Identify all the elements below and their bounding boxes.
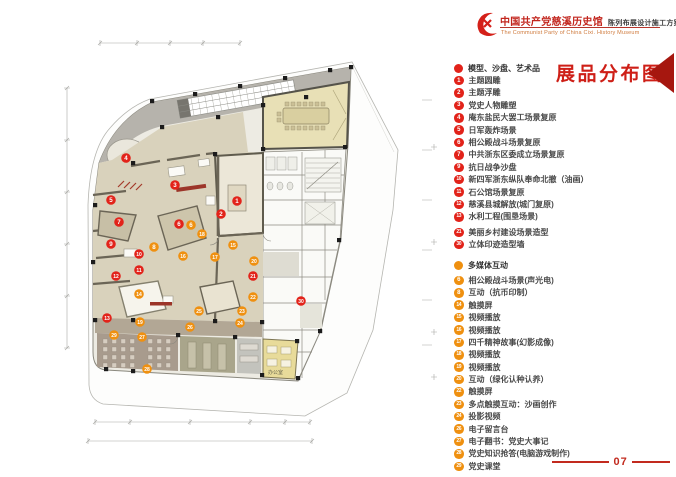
- legend-item: 11石公馆场景复原: [454, 186, 676, 198]
- legend-item-label: 相公殿战斗场景(声光电): [469, 275, 554, 286]
- plan-marker: 6: [186, 220, 196, 230]
- legend-item: 2主题浮雕: [454, 87, 676, 99]
- svg-text:6: 6: [189, 222, 193, 229]
- legend-item-number: 28: [454, 449, 464, 459]
- legend-item-number: 12: [454, 200, 464, 210]
- page-number-dash: [552, 461, 609, 463]
- legend-item-label: 相公殿战斗场景复原: [469, 137, 541, 148]
- legend-item: 19视频播放: [454, 361, 676, 373]
- legend-item-label: 主题浮雕: [469, 87, 501, 98]
- svg-text:9: 9: [109, 241, 113, 248]
- legend-item-number: 14: [454, 300, 464, 310]
- category-label: 多媒体互动: [468, 260, 508, 271]
- legend-item-label: 美丽乡村建设场景造型: [469, 227, 549, 238]
- legend-item-number: 26: [454, 424, 464, 434]
- legend-item: 27电子翻书：党史大事记: [454, 435, 676, 447]
- page: 海笛设计: [0, 0, 676, 477]
- svg-text:22: 22: [250, 295, 256, 301]
- plan-marker: 1: [232, 196, 242, 206]
- plan-marker: 18: [197, 229, 207, 239]
- legend-item-label: 中共浙东区委成立场景复原: [469, 149, 565, 160]
- legend-item-label: 电子翻书：党史大事记: [469, 436, 549, 447]
- party-emblem-logo: [474, 11, 500, 37]
- legend-item: 8互动（抗币印制）: [454, 287, 676, 299]
- plan-marker: 20: [249, 256, 259, 266]
- svg-text:17: 17: [212, 255, 218, 261]
- reading-tables: [188, 342, 226, 370]
- plan-marker: 4: [121, 153, 131, 163]
- legend-item-number: 3: [454, 101, 464, 111]
- svg-text:3: 3: [173, 182, 177, 189]
- plan-marker: 12: [111, 271, 121, 281]
- plan-marker: 25: [194, 306, 204, 316]
- page-number: 07: [552, 456, 670, 468]
- legend-item-label: 视频播放: [469, 362, 501, 373]
- svg-text:16: 16: [180, 254, 186, 260]
- legend-item-label: 四千精神故事(幻影成像): [469, 337, 554, 348]
- plan-marker: 15: [228, 240, 238, 250]
- legend-list: 模型、沙盘、艺术品1主题圆雕2主题浮雕3党史人物雕塑4庵东盐民大罢工场景复原5日…: [454, 62, 676, 473]
- legend-category: 模型、沙盘、艺术品: [454, 62, 676, 74]
- svg-text:8: 8: [152, 244, 156, 251]
- plan-marker: 2: [216, 209, 226, 219]
- svg-text:12: 12: [113, 274, 119, 280]
- category-dot-icon: [454, 64, 463, 73]
- plan-marker: 22: [248, 292, 258, 302]
- svg-text:19: 19: [137, 320, 143, 326]
- svg-text:6: 6: [177, 221, 181, 228]
- plan-marker: 27: [137, 332, 147, 342]
- legend-item-number: 4: [454, 113, 464, 123]
- legend-item: 30立体印迹造型墙: [454, 238, 676, 250]
- plan-marker: 17: [210, 252, 220, 262]
- legend-item-label: 投影视频: [469, 411, 501, 422]
- category-dot-icon: [454, 261, 463, 270]
- legend-item-number: 17: [454, 338, 464, 348]
- legend-item-label: 慈溪县城解放(城门复原): [469, 199, 554, 210]
- legend-item: 13水利工程(围垦场景): [454, 211, 676, 223]
- svg-text:1: 1: [235, 198, 239, 205]
- legend-item-number: 1: [454, 76, 464, 86]
- legend-item-number: 27: [454, 437, 464, 447]
- svg-text:14: 14: [136, 292, 142, 298]
- legend-item-number: 16: [454, 325, 464, 335]
- legend-item: 15视频播放: [454, 311, 676, 323]
- legend-item-number: 9: [454, 163, 464, 173]
- plan-marker: 29: [109, 330, 119, 340]
- svg-text:7: 7: [117, 219, 121, 226]
- legend-item-number: 13: [454, 212, 464, 222]
- svg-text:29: 29: [111, 333, 117, 339]
- svg-text:11: 11: [136, 268, 142, 274]
- legend-item-label: 主题圆雕: [469, 75, 501, 86]
- legend-item: 9抗日战争沙盘: [454, 161, 676, 173]
- legend-item: 17四千精神故事(幻影成像): [454, 336, 676, 348]
- svg-text:10: 10: [136, 252, 142, 258]
- svg-text:26: 26: [187, 325, 193, 331]
- plan-marker: 28: [142, 364, 152, 374]
- legend-item: 14触摸屏: [454, 299, 676, 311]
- legend-item: 3党史人物雕塑: [454, 99, 676, 111]
- legend-item: 21美丽乡村建设场景造型: [454, 226, 676, 238]
- svg-text:18: 18: [199, 232, 205, 238]
- svg-text:13: 13: [104, 316, 110, 322]
- legend-category: 多媒体互动: [454, 259, 676, 271]
- plan-marker: 5: [106, 195, 116, 205]
- plan-marker: 21: [248, 271, 258, 281]
- legend-item-label: 水利工程(围垦场景): [469, 211, 538, 222]
- legend-item: 16视频播放: [454, 324, 676, 336]
- legend-item: 12慈溪县城解放(城门复原): [454, 198, 676, 210]
- legend-item-number: 23: [454, 400, 464, 410]
- legend-item-label: 电子留言台: [469, 424, 509, 435]
- plan-marker: 13: [102, 313, 112, 323]
- svg-text:25: 25: [196, 309, 202, 315]
- legend-item-label: 抗日战争沙盘: [469, 162, 517, 173]
- svg-text:15: 15: [230, 243, 236, 249]
- legend-item: 18视频播放: [454, 349, 676, 361]
- legend-item: 6相公殿战斗场景复原: [454, 136, 676, 148]
- legend-item-label: 视频播放: [469, 312, 501, 323]
- legend-item-label: 日军轰炸场景: [469, 125, 517, 136]
- office-label: 办公室: [268, 369, 283, 376]
- legend-item-label: 庵东盐民大罢工场景复原: [469, 112, 557, 123]
- legend-item: 7中共浙东区委成立场景复原: [454, 149, 676, 161]
- svg-text:4: 4: [124, 155, 128, 162]
- legend-item: 22触摸屏: [454, 386, 676, 398]
- museum-title-en: The Communist Party of China Cixi. Histo…: [501, 30, 639, 36]
- legend-item: 20互动（绿化认种认养）: [454, 373, 676, 385]
- plan-marker: 19: [135, 317, 145, 327]
- legend-item-label: 互动（抗币印制）: [469, 287, 533, 298]
- svg-text:23: 23: [239, 309, 245, 315]
- legend-item: 4庵东盐民大罢工场景复原: [454, 112, 676, 124]
- plan-marker: 10: [134, 249, 144, 259]
- plan-marker: 7: [114, 217, 124, 227]
- legend-item: 10新四军浙东纵队奉命北撤（油画）: [454, 174, 676, 186]
- plan-marker: 30: [296, 296, 306, 306]
- plan-marker: 23: [237, 306, 247, 316]
- legend-item-number: 10: [454, 175, 464, 185]
- category-label: 模型、沙盘、艺术品: [468, 63, 540, 74]
- svg-text:27: 27: [139, 335, 145, 341]
- svg-text:5: 5: [109, 197, 113, 204]
- plan-marker: 11: [134, 265, 144, 275]
- legend-item-number: 7: [454, 150, 464, 160]
- legend-item-number: 18: [454, 350, 464, 360]
- legend-item-label: 互动（绿化认种认养）: [469, 374, 549, 385]
- plan-marker: 9: [106, 239, 116, 249]
- legend-item-number: 22: [454, 387, 464, 397]
- svg-text:28: 28: [144, 367, 150, 373]
- legend-item-number: 29: [454, 462, 464, 472]
- legend-item-number: 21: [454, 228, 464, 238]
- legend-item-label: 石公馆场景复原: [469, 187, 525, 198]
- legend-item-label: 新四军浙东纵队奉命北撤（油画）: [469, 174, 589, 185]
- legend-item: 26电子留言台: [454, 423, 676, 435]
- legend-item-label: 多点触摸互动：沙画创作: [469, 399, 557, 410]
- legend-item-label: 立体印迹造型墙: [469, 239, 525, 250]
- plan-marker: 8: [149, 242, 159, 252]
- legend-item-number: 5: [454, 125, 464, 135]
- page-number-dash: [632, 461, 670, 463]
- legend-item-number: 8: [454, 288, 464, 298]
- legend-item-number: 11: [454, 187, 464, 197]
- legend-item-label: 视频播放: [469, 325, 501, 336]
- legend-item-number: 30: [454, 240, 464, 250]
- plan-marker: 14: [134, 289, 144, 299]
- legend-item: 5日军轰炸场景: [454, 124, 676, 136]
- legend-item-label: 视频播放: [469, 349, 501, 360]
- plan-marker: 6: [174, 219, 184, 229]
- legend-item-number: 24: [454, 412, 464, 422]
- svg-text:30: 30: [298, 299, 304, 305]
- legend-item: 6相公殿战斗场景(声光电): [454, 274, 676, 286]
- legend-item-number: 15: [454, 313, 464, 323]
- svg-text:21: 21: [250, 274, 256, 280]
- museum-title: 中国共产党慈溪历史馆: [500, 13, 603, 28]
- plan-marker: 24: [235, 318, 245, 328]
- plan-marker: 3: [170, 180, 180, 190]
- legend-item-label: 党史人物雕塑: [469, 100, 517, 111]
- legend-item: 23多点触摸互动：沙画创作: [454, 398, 676, 410]
- legend-item-number: 19: [454, 362, 464, 372]
- svg-text:24: 24: [237, 321, 243, 327]
- legend-item: 1主题圆雕: [454, 74, 676, 86]
- plan-marker: 16: [178, 251, 188, 261]
- svg-text:20: 20: [251, 259, 257, 265]
- legend-item-number: 6: [454, 138, 464, 148]
- legend-item-label: 触摸屏: [469, 300, 493, 311]
- legend-item-label: 触摸屏: [469, 386, 493, 397]
- plan-marker: 26: [185, 322, 195, 332]
- legend-item-number: 20: [454, 375, 464, 385]
- legend-item-label: 党史课堂: [469, 461, 501, 472]
- svg-text:2: 2: [219, 211, 223, 218]
- header-underline: [500, 27, 660, 28]
- legend-item-number: 2: [454, 88, 464, 98]
- legend-item-number: 6: [454, 276, 464, 286]
- legend-item: 24投影视频: [454, 411, 676, 423]
